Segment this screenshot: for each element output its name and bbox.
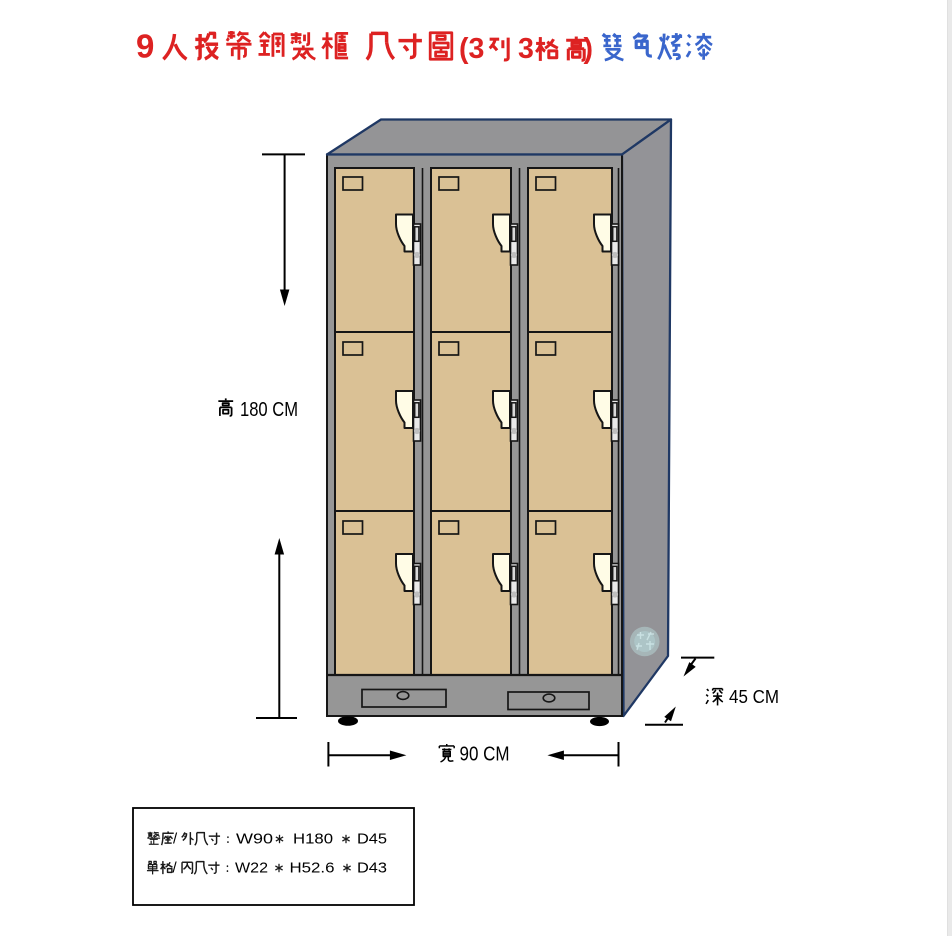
svg-text:D43: D43 [357, 860, 387, 877]
svg-text:W22: W22 [235, 860, 268, 877]
svg-text:9: 9 [136, 28, 154, 65]
svg-text:(3: (3 [459, 33, 484, 65]
svg-text:W90: W90 [236, 831, 273, 848]
svg-text:90 CM: 90 CM [460, 744, 510, 766]
svg-text:180 CM: 180 CM [240, 398, 298, 421]
svg-text:): ) [584, 33, 594, 65]
svg-text:H52.6: H52.6 [290, 860, 335, 877]
svg-text:45 CM: 45 CM [729, 687, 779, 707]
svg-text:D45: D45 [357, 831, 387, 848]
svg-text:3: 3 [518, 33, 534, 65]
svg-text:H180: H180 [293, 831, 333, 848]
